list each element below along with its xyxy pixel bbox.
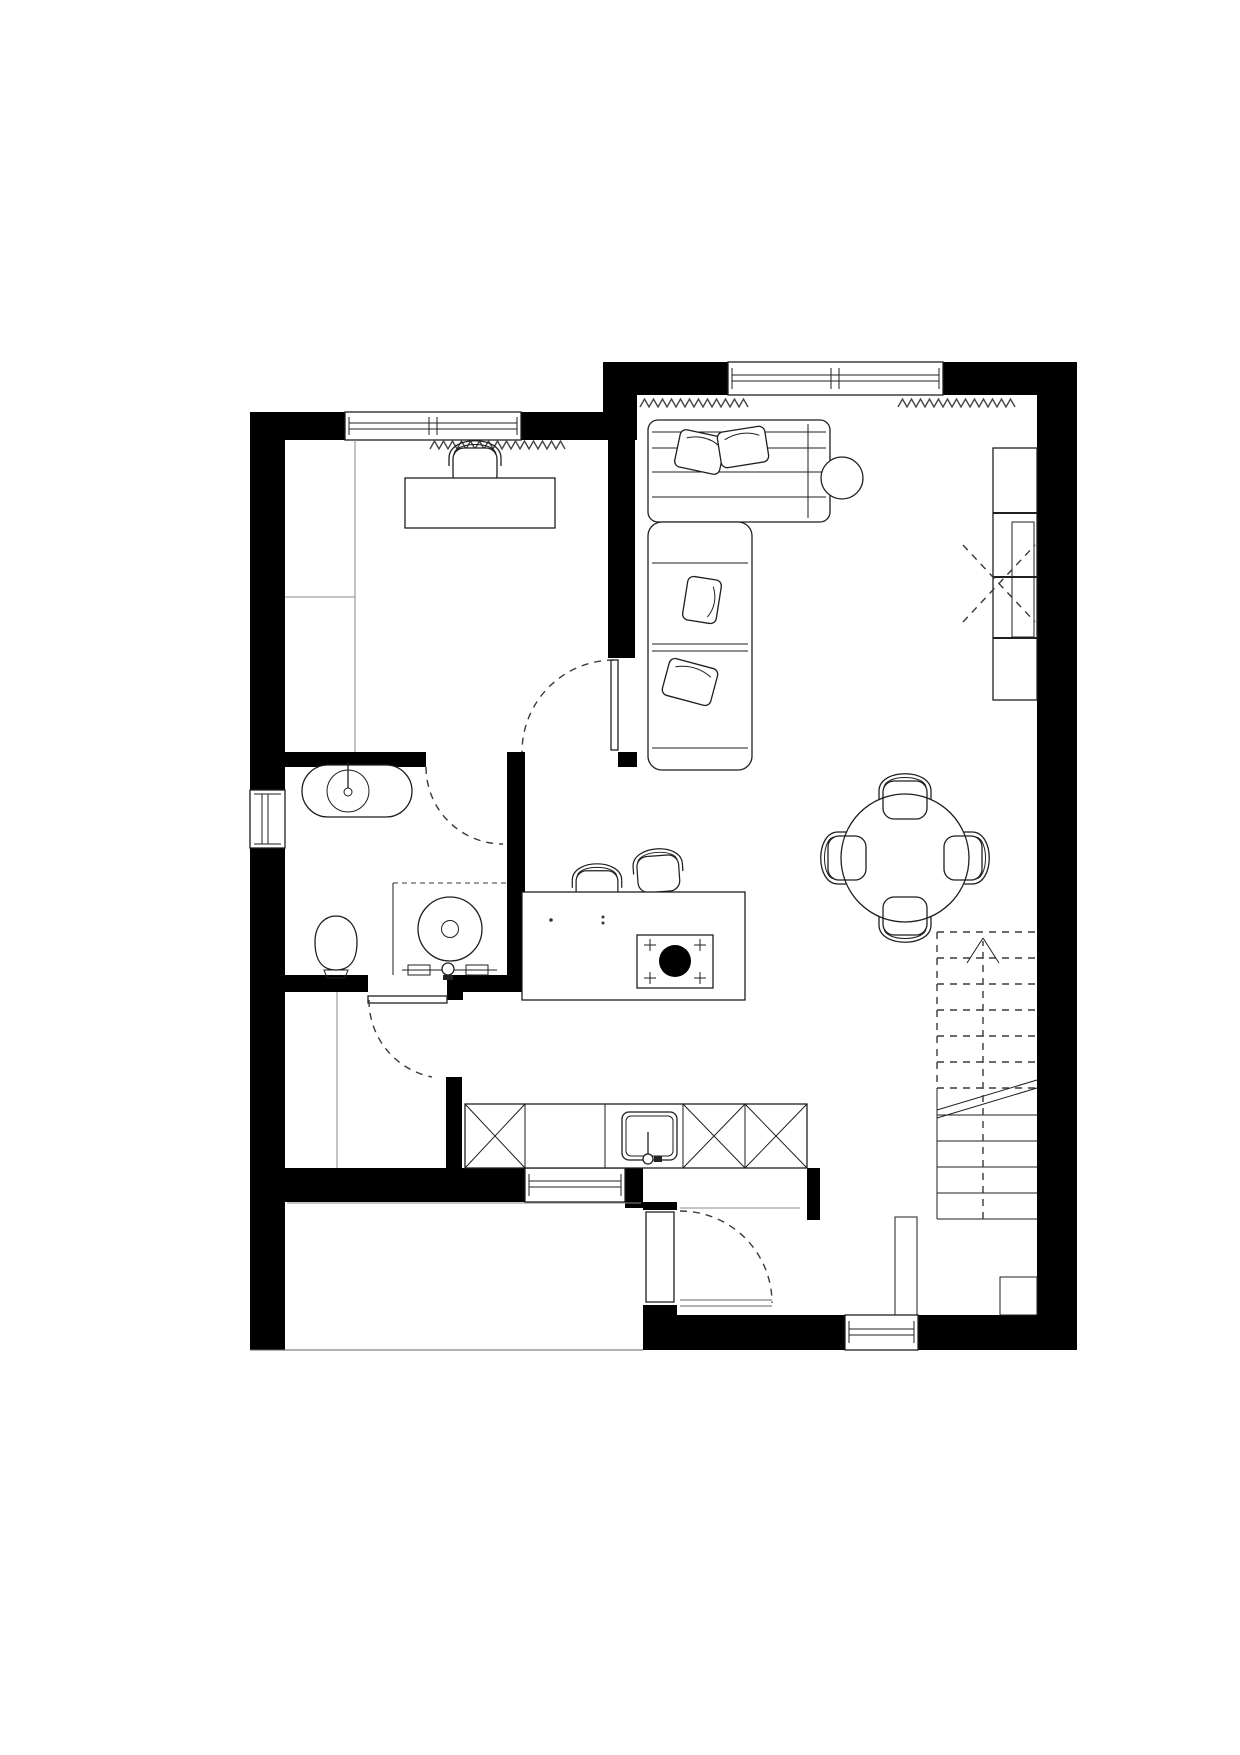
storage-entry-door xyxy=(646,1211,772,1306)
island-fitting-dot xyxy=(602,922,605,925)
wall-segment xyxy=(446,1077,462,1168)
wall-segment xyxy=(643,1305,677,1350)
wall-segment xyxy=(463,975,507,992)
bathroom-window xyxy=(250,790,285,848)
zigzag-line xyxy=(898,399,1015,407)
wall-segment xyxy=(807,1168,820,1220)
desk xyxy=(405,478,555,528)
stairs-break-line xyxy=(937,1088,1037,1118)
floor-plan-canvas xyxy=(0,0,1240,1755)
entry-closet xyxy=(895,1217,917,1315)
kitchen-island xyxy=(522,847,745,1000)
wall-segment xyxy=(643,1202,677,1210)
office-room xyxy=(285,440,555,752)
hallway-window xyxy=(525,1168,625,1202)
floor-plan-page xyxy=(0,0,1240,1755)
wall-segment xyxy=(250,848,285,1350)
living-room-window xyxy=(728,362,943,395)
wall-segment xyxy=(918,1315,1077,1350)
wall-segment xyxy=(618,752,637,767)
wall-segment xyxy=(1037,362,1077,1350)
wall-segment xyxy=(603,362,728,395)
entry-cabinet xyxy=(1000,1277,1037,1315)
wall-segment xyxy=(250,412,345,440)
staircase xyxy=(937,932,1037,1219)
bathroom-door xyxy=(426,767,503,844)
washing-machine xyxy=(393,883,507,980)
stairs-lower-solid-treads xyxy=(937,1088,1037,1219)
stairs-upper-dashed-treads xyxy=(937,932,1037,1088)
storage-room xyxy=(250,1203,643,1350)
wall-shelf xyxy=(993,448,1037,700)
wall-segment xyxy=(250,412,285,790)
wall-segment xyxy=(625,1168,643,1208)
hallway-door xyxy=(368,996,447,1077)
toilet xyxy=(315,916,357,978)
island-fitting-dot xyxy=(549,918,553,922)
side-table xyxy=(821,457,863,499)
stairs-break-line xyxy=(937,1080,1037,1110)
dining-area xyxy=(821,774,990,943)
living-area xyxy=(648,420,1037,770)
kitchen-counter xyxy=(465,1104,807,1168)
wall-segment xyxy=(608,424,635,658)
zigzag-line xyxy=(640,399,748,407)
office-door xyxy=(522,660,618,752)
wall-segment xyxy=(250,1168,525,1202)
bar-chair xyxy=(632,847,684,893)
sofa-cushion xyxy=(716,425,769,468)
bathroom xyxy=(302,759,507,980)
corner-sofa xyxy=(648,420,830,770)
island-fitting-dot xyxy=(602,916,605,919)
entry-window xyxy=(845,1315,918,1350)
entry xyxy=(680,1208,1037,1315)
office-window xyxy=(345,412,521,440)
hob xyxy=(637,935,713,988)
sofa-cushion xyxy=(682,576,722,625)
stairs-up-arrow xyxy=(967,938,999,1219)
washbasin xyxy=(302,762,412,817)
